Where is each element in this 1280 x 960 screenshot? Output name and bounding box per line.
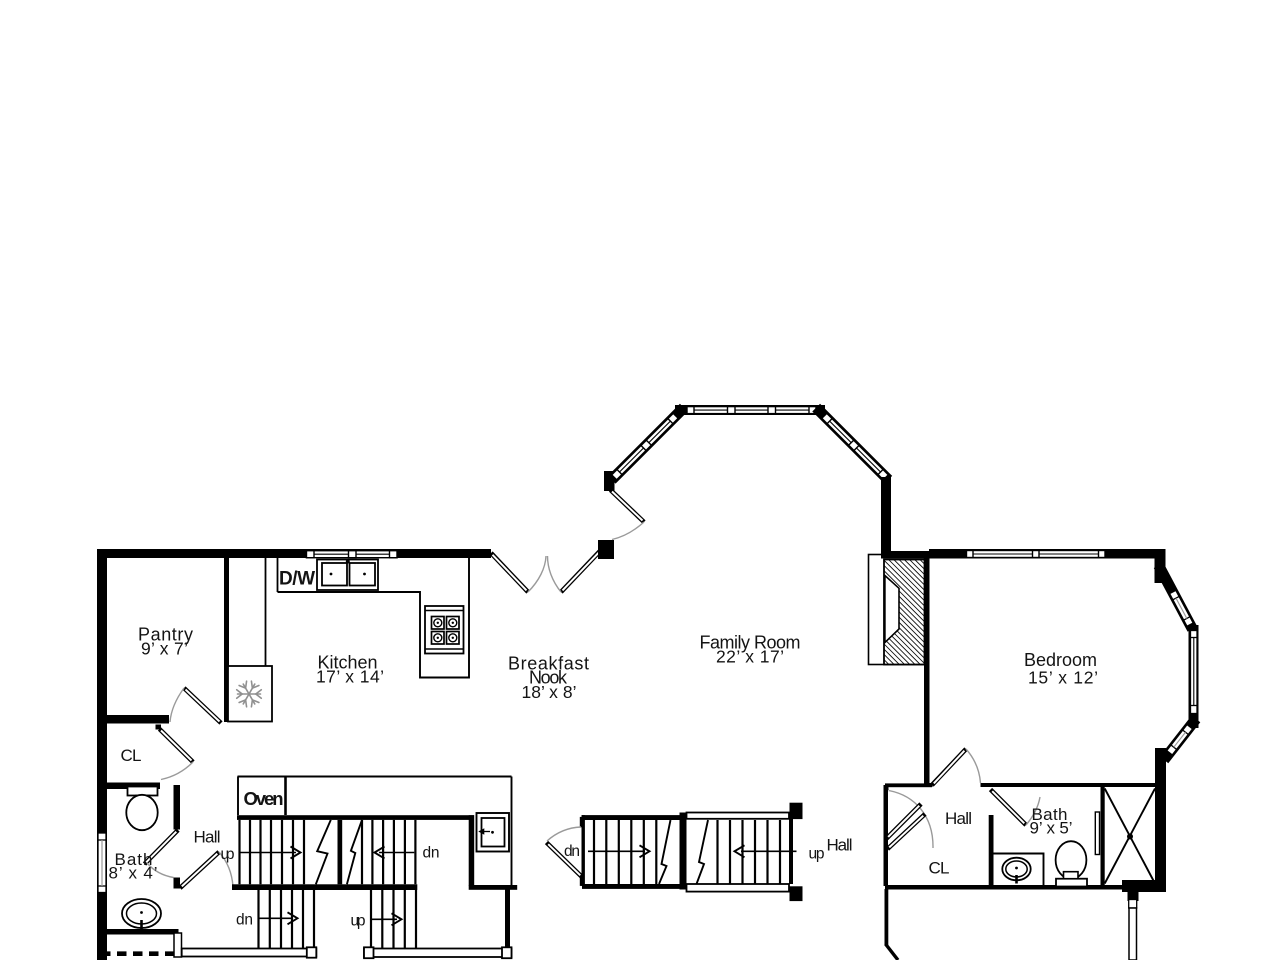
svg-text:8’ x 4’: 8’ x 4’: [109, 864, 158, 883]
svg-text:17’ x 14’: 17’ x 14’: [316, 667, 384, 687]
svg-text:up: up: [351, 913, 366, 930]
svg-text:up: up: [809, 846, 825, 863]
svg-text:up: up: [221, 846, 235, 863]
svg-text:Oven: Oven: [244, 788, 284, 809]
svg-text:CL: CL: [929, 859, 950, 878]
svg-text:Hall: Hall: [827, 836, 853, 855]
svg-text:22’ x 17’: 22’ x 17’: [716, 647, 784, 667]
svg-text:15’ x 12’: 15’ x 12’: [1028, 668, 1098, 688]
svg-text:18’ x 8’: 18’ x 8’: [522, 682, 577, 702]
svg-text:dn: dn: [564, 843, 580, 860]
svg-text:Hall: Hall: [945, 809, 972, 828]
svg-text:dn: dn: [423, 845, 440, 862]
svg-text:Hall: Hall: [194, 828, 221, 847]
svg-text:9’ x 7’: 9’ x 7’: [141, 639, 188, 659]
svg-text:9’ x 5’: 9’ x 5’: [1030, 819, 1073, 838]
svg-text:CL: CL: [121, 746, 142, 765]
svg-text:dn: dn: [236, 912, 253, 929]
svg-text:D/W: D/W: [279, 569, 315, 590]
